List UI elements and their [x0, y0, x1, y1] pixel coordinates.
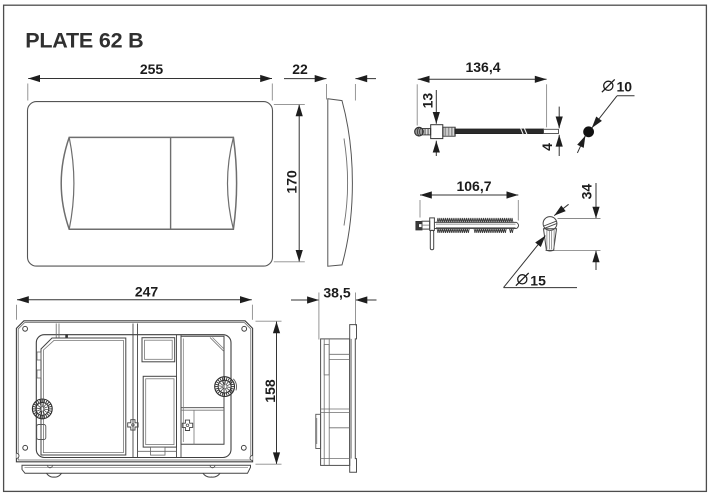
svg-text:PLATE 62 B: PLATE 62 B [25, 29, 143, 53]
svg-text:106,7: 106,7 [456, 178, 491, 194]
svg-text:136,4: 136,4 [465, 59, 500, 75]
svg-text:22: 22 [292, 61, 308, 77]
svg-text:34: 34 [579, 184, 595, 200]
svg-text:158: 158 [262, 379, 278, 403]
svg-text:4: 4 [539, 143, 555, 151]
svg-text:38,5: 38,5 [323, 284, 350, 300]
svg-text:255: 255 [140, 61, 164, 77]
svg-text:10: 10 [617, 79, 633, 95]
svg-text:170: 170 [284, 170, 300, 194]
svg-text:247: 247 [135, 283, 159, 299]
svg-text:15: 15 [530, 272, 546, 288]
svg-text:13: 13 [419, 93, 435, 109]
